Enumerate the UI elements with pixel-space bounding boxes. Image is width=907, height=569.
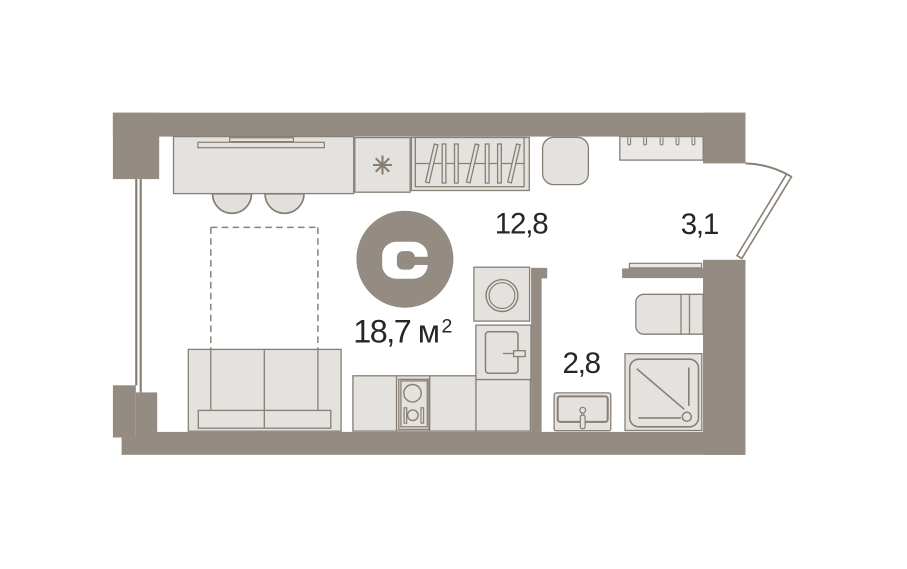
svg-text:2: 2 [442, 316, 453, 338]
svg-text:12,8: 12,8 [495, 207, 548, 240]
svg-text:18,7 м: 18,7 м [353, 314, 439, 350]
svg-text:3,1: 3,1 [681, 208, 718, 241]
svg-text:2,8: 2,8 [562, 347, 600, 380]
